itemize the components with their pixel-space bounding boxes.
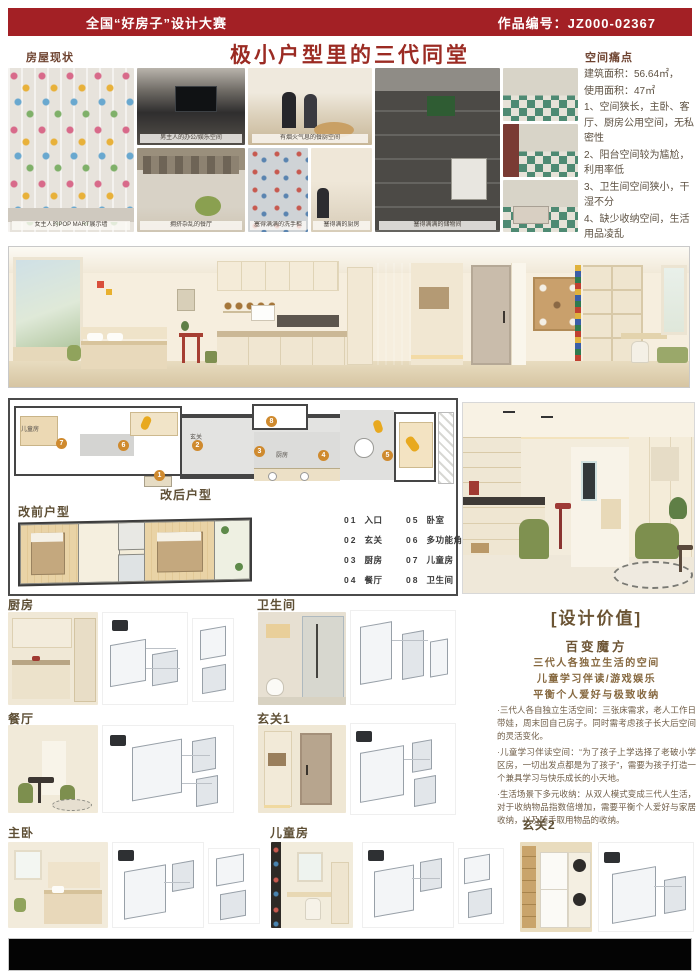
legend-text: 餐厅	[364, 575, 382, 585]
storage-box	[471, 543, 489, 553]
toe-kick-light	[264, 805, 290, 808]
foyer-wardrobe	[411, 263, 463, 365]
left-window	[13, 257, 83, 355]
red-table-leg	[182, 337, 185, 363]
platform-bed	[81, 341, 167, 369]
window	[297, 852, 323, 882]
door-handle	[306, 765, 308, 775]
kitchen-exploded-diagram	[102, 612, 188, 705]
iso-block	[124, 864, 166, 919]
plan-marker-8: 8	[266, 416, 277, 427]
laundry-tower	[568, 852, 591, 928]
after-floorplan: 儿童房 厨房 玄关 1 2 3 4 5 6	[14, 404, 452, 488]
iso-block	[216, 854, 244, 887]
secondary-bed	[130, 412, 178, 436]
photo-caption: 塞得满满的储物间	[379, 221, 497, 230]
kids-exploded-diagram	[362, 842, 454, 928]
fridge-door-seam	[541, 889, 567, 890]
window	[14, 850, 42, 880]
floor-tile	[258, 697, 346, 705]
pain-line: 2、阳台空间较为尴尬，利用率低	[584, 148, 696, 179]
desk	[287, 892, 331, 897]
old-kitchen	[119, 555, 145, 582]
kitchen-counter	[254, 468, 340, 481]
photo-caption: 女主人的POP MART展示墙	[12, 221, 130, 230]
upper-cabinets	[12, 618, 72, 648]
design-value-bullets: ·三代人各自独立生活空间：三张床需求，老人工作日带娃，周末回自己房子。同时需考虑…	[497, 704, 696, 830]
dryer-door	[573, 859, 586, 872]
kitchen-section-label: 厨房	[8, 596, 34, 613]
entry-number: 作品编号：JZ000-02367	[498, 13, 656, 32]
toe-kick-light	[411, 355, 463, 359]
design-value-subheading: 百变魔方	[498, 636, 695, 655]
entry-door	[300, 733, 332, 805]
range-hood-wall	[277, 315, 339, 327]
base-cabinets	[217, 337, 347, 365]
legend-item: 03厨房	[344, 554, 382, 566]
legend-text: 玄关	[364, 535, 382, 545]
green-bench	[657, 347, 688, 363]
before-plan-label: 改前户型	[18, 503, 70, 520]
photo-chip	[110, 735, 126, 746]
legend-text: 儿童房	[426, 555, 453, 565]
legend-item: 04餐厅	[344, 574, 382, 586]
cabinet-niche	[268, 753, 286, 766]
pain-line: 3、卫生间空间狭小，干湿不分	[584, 180, 696, 211]
iso-block	[420, 858, 442, 892]
track-light	[541, 416, 553, 418]
green-armchair	[635, 523, 679, 559]
photo-cluttered-dining: 拥挤杂乱的餐厅	[137, 148, 245, 232]
red-stool	[555, 503, 571, 509]
plant	[181, 321, 189, 331]
legend-num: 04	[344, 575, 357, 585]
pillow	[52, 886, 64, 893]
iso-block	[110, 639, 146, 687]
entry-door	[471, 265, 511, 365]
photo-caption: 塞得满的厨房	[313, 221, 370, 230]
iso-block	[468, 888, 492, 918]
old-balcony	[215, 521, 249, 580]
legend-item: 06多功能角	[406, 534, 462, 546]
photo-kitchen-cooking: 有烟火气息的餐厨空间	[248, 68, 372, 145]
leader-line	[146, 648, 176, 649]
bathroom-exploded-diagram	[350, 610, 456, 705]
dining-table	[28, 777, 54, 783]
base-cabinets	[12, 665, 70, 699]
iso-block	[374, 864, 414, 917]
before-floorplan	[18, 518, 252, 587]
kids-secondary-room: 儿童房	[14, 406, 182, 476]
old-bath	[119, 523, 145, 550]
legend-item: 05卧室	[406, 514, 444, 526]
wall-art	[177, 289, 195, 311]
design-value-heading: [设计价值]	[498, 604, 695, 629]
tall-pantry	[74, 618, 96, 702]
wood-open-shelf	[522, 846, 536, 928]
legend-item: 07儿童房	[406, 554, 453, 566]
photo-old-room-2	[503, 124, 578, 177]
red-wardrobe	[503, 124, 519, 177]
desk-chair	[305, 898, 321, 920]
kids-section-label: 儿童房	[270, 824, 309, 841]
iso-block	[132, 739, 182, 802]
after-plan-label: 改后户型	[160, 486, 212, 503]
dining-render	[8, 725, 98, 813]
bottom-black-bar	[8, 938, 692, 971]
closet-hatch	[438, 412, 454, 484]
photo-chip	[118, 850, 134, 861]
hall-window	[581, 461, 597, 501]
plan-marker-2: 2	[192, 440, 203, 451]
legend-num: 01	[344, 515, 357, 525]
legend-text: 厨房	[364, 555, 382, 565]
leader-line	[392, 640, 428, 641]
photo-popmart-wall: 女主人的POP MART展示墙	[8, 68, 134, 232]
ceiling	[463, 403, 694, 439]
green-pouf	[14, 898, 26, 912]
poster-page: 全国“好房子”设计大赛 作品编号：JZ000-02367 极小户型里的三代同堂 …	[0, 0, 700, 976]
wall-shelves	[143, 156, 239, 174]
bathroom-section-label: 卫生间	[257, 596, 296, 613]
kitchen-exploded-diagram-2	[192, 618, 234, 702]
legend-num: 05	[406, 515, 419, 525]
leader-line	[182, 755, 210, 756]
old-bed	[513, 206, 549, 224]
storage-drawer	[451, 158, 487, 200]
leader-line	[654, 886, 682, 887]
living-floor	[340, 410, 394, 480]
sink	[268, 472, 277, 481]
legend-item: 08卫生间	[406, 574, 453, 586]
shelf-strip	[8, 208, 134, 222]
pain-points-text: 建筑面积：56.64㎡， 使用面积：47㎡ 1、空间狭长，主卧、客厅、厨房公用空…	[584, 67, 696, 244]
plant	[221, 526, 229, 534]
iso-block	[196, 775, 218, 807]
legend-item: 01入口	[344, 514, 382, 526]
toilet	[266, 678, 284, 696]
legend-num: 07	[406, 555, 419, 565]
legend-text: 卧室	[426, 515, 444, 525]
leader-line	[182, 783, 212, 784]
red-table-leg	[197, 337, 200, 363]
kids-exploded-diagram-2	[458, 848, 504, 924]
iso-block	[412, 739, 432, 773]
photo-chip	[112, 620, 128, 631]
cabinet-vent	[651, 447, 679, 481]
room-label-kids: 儿童房	[21, 424, 39, 433]
red-pot	[32, 656, 40, 661]
washer-door	[573, 893, 586, 906]
bar-counter	[463, 497, 545, 505]
photo-old-room-1	[503, 68, 578, 121]
shower-bar	[316, 624, 318, 678]
legend-text: 多功能角	[426, 535, 462, 545]
iso-block	[200, 626, 226, 661]
status-section-label: 房屋现状	[26, 49, 74, 65]
plan-marker-1: 1	[154, 470, 165, 481]
legend-num: 02	[344, 535, 357, 545]
master-exploded-diagram-2	[208, 848, 260, 924]
bathroom-render	[258, 612, 346, 705]
microwave	[251, 305, 275, 321]
iso-block	[220, 890, 246, 921]
leader-line	[146, 668, 180, 669]
wardrobe	[331, 862, 349, 924]
iso-block	[360, 745, 404, 803]
foyer2-exploded-diagram	[598, 842, 694, 932]
person-silhouette	[304, 94, 317, 128]
legend-text: 卫生间	[426, 575, 453, 585]
green-chair	[18, 783, 33, 803]
person-silhouette	[317, 188, 329, 218]
red-stool-leg	[559, 509, 562, 549]
legend-num: 06	[406, 535, 419, 545]
room-label-kitchen: 厨房	[276, 450, 288, 459]
plan-marker-4: 4	[318, 450, 329, 461]
leader-line	[164, 882, 190, 883]
old-pillow	[157, 532, 201, 542]
legend-num: 03	[344, 555, 357, 565]
door-handle	[503, 311, 505, 323]
iso-block	[172, 860, 194, 892]
photo-office-corner: 男主人的办公/娱乐空间	[137, 68, 245, 145]
desk-chair	[631, 341, 649, 363]
photo-caption: 塞得满满的洗手柜	[250, 221, 306, 230]
master-exploded-diagram	[112, 842, 204, 928]
iso-block	[414, 775, 436, 807]
design-value-highlight: 平衡个人爱好与极致收纳	[498, 686, 695, 701]
stored-box	[427, 96, 455, 116]
right-window	[661, 265, 687, 335]
iso-block	[664, 876, 686, 914]
legend-item: 02玄关	[344, 534, 382, 546]
niche-shelf	[266, 624, 290, 638]
design-value-highlight: 儿童学习伴读/游戏娱乐	[498, 670, 695, 685]
wall-toy-decor	[106, 289, 112, 295]
shower-glass	[302, 616, 344, 698]
dark-bookshelf-strip	[271, 842, 281, 928]
plan-marker-5: 5	[382, 450, 393, 461]
upper-cabinets	[217, 261, 339, 291]
master-room	[394, 412, 436, 482]
foyer-cabinet	[264, 731, 292, 807]
pain-line: 4、缺少收纳空间，生活用品凌乱	[584, 212, 696, 243]
leader-line	[412, 878, 440, 879]
pain-line: 建筑面积：56.64㎡，	[584, 67, 696, 83]
plan-marker-3: 3	[254, 446, 265, 457]
legend-num: 08	[406, 575, 419, 585]
value-bullet: ·儿童学习伴读空间：“为了孩子上学选择了老破小学区房，一切出发点都是为了孩子”，…	[497, 746, 696, 785]
iso-block	[202, 664, 226, 694]
floorplan-panel: 儿童房 厨房 玄关 1 2 3 4 5 6	[8, 398, 458, 596]
kids-render	[271, 842, 353, 928]
kitchen-render	[8, 612, 98, 705]
wall-toy-decor	[97, 281, 104, 288]
monitor	[175, 86, 217, 112]
header-bar: 全国“好房子”设计大赛 作品编号：JZ000-02367	[8, 8, 692, 36]
table-stem	[38, 783, 41, 803]
hallway-render	[462, 402, 695, 594]
master-section-label: 主卧	[8, 824, 34, 841]
round-table	[354, 438, 374, 458]
plan-marker-7: 7	[56, 438, 67, 449]
beanbag	[195, 196, 221, 216]
dining-exploded-diagram	[102, 725, 234, 813]
far-room-glimpse	[601, 499, 621, 529]
wardrobe-niche	[419, 287, 449, 309]
panorama-render	[8, 246, 690, 388]
bathroom-room	[252, 404, 308, 430]
pillow	[87, 333, 103, 341]
foyer1-exploded-diagram	[350, 723, 456, 815]
photo-chip	[368, 850, 384, 861]
iso-block	[464, 854, 490, 885]
photo-caption: 有烟火气息的餐厨空间	[252, 134, 369, 143]
old-pillow	[31, 533, 63, 543]
pain-line: 1、空间狭长，主卧、客厅、厨房公用空间，无私密性	[584, 100, 696, 147]
photo-storage-cabinet: 塞得满满的洗手柜	[248, 148, 308, 232]
bed	[44, 890, 102, 924]
photo-chip	[356, 731, 372, 742]
pain-section-label: 空间痛点	[585, 49, 633, 65]
cork-pinboard	[533, 277, 577, 331]
plant	[669, 497, 687, 519]
design-value-highlight: 三代人各独立生活的空间	[498, 654, 695, 669]
iso-block	[402, 630, 424, 680]
person-silhouette	[282, 92, 296, 128]
green-pouf	[67, 345, 81, 361]
photo-chip	[604, 852, 620, 863]
person-figure	[372, 419, 384, 434]
photo-caption: 拥挤杂乱的餐厅	[140, 221, 242, 230]
old-hall	[79, 523, 119, 582]
photo-old-room-3	[503, 180, 578, 232]
fridge	[540, 852, 568, 928]
foyer1-render	[258, 725, 346, 813]
competition-title: 全国“好房子”设计大赛	[86, 13, 227, 32]
pain-line: 使用面积：47㎡	[584, 84, 696, 100]
green-chair	[519, 519, 549, 559]
tall-cabinet	[347, 267, 373, 365]
photo-caption: 男主人的办公/娱乐空间	[140, 134, 242, 143]
foyer2-section-label: 玄关2	[522, 816, 556, 833]
side-table-leg	[679, 550, 682, 572]
leader-line	[404, 759, 430, 760]
iso-block	[612, 866, 656, 924]
legend-text: 入口	[364, 515, 382, 525]
rug	[52, 799, 92, 811]
value-bullet: ·三代人各自独立生活空间：三张床需求，老人工作日带娃，周末回自己房子。同时需考虑…	[497, 704, 696, 743]
photo-crowded-kitchen: 塞得满的厨房	[311, 148, 372, 232]
photo-stuffed-closet: 塞得满满的储物间	[375, 68, 500, 232]
foyer2-render	[520, 842, 592, 932]
old-bedroom-left	[21, 524, 79, 583]
iso-block	[430, 638, 448, 677]
old-bedroom-main	[145, 521, 215, 580]
track-light	[503, 411, 515, 413]
headboard-wall	[48, 862, 100, 888]
coffee-machine	[469, 481, 479, 495]
iso-block	[360, 621, 392, 685]
pillow	[107, 333, 123, 341]
plan-marker-6: 6	[118, 440, 129, 451]
plant	[235, 563, 243, 571]
green-stool	[205, 351, 217, 363]
master-render	[8, 842, 108, 928]
smoked-glass-partition	[377, 263, 411, 365]
cooktop	[300, 472, 309, 481]
wall-pier	[511, 263, 526, 365]
book-spine-strip	[575, 265, 581, 361]
